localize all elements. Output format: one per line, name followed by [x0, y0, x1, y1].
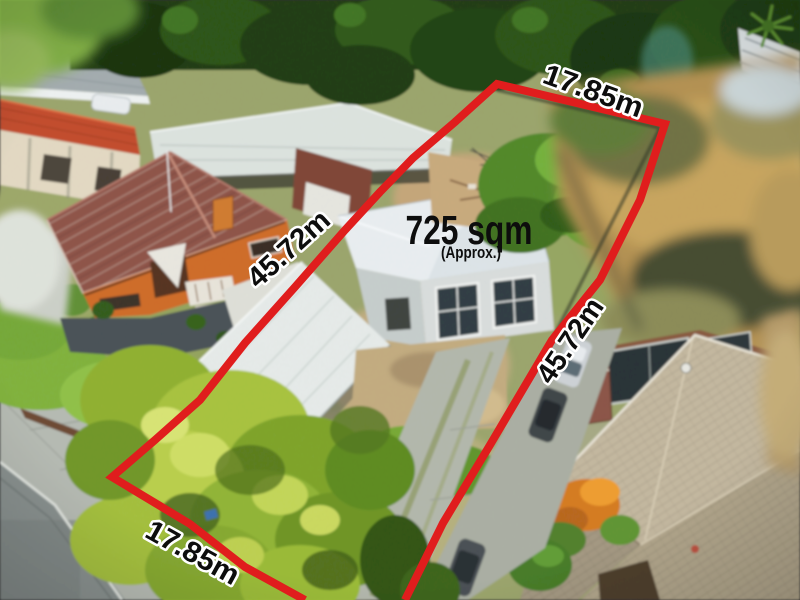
photo-scene — [0, 0, 800, 600]
area-qualifier: (Approx.) — [441, 243, 501, 262]
vignette — [0, 0, 800, 600]
aerial-property-photo: 17.85m 45.72m 45.72m 17.85m 725 sqm (App… — [0, 0, 800, 600]
